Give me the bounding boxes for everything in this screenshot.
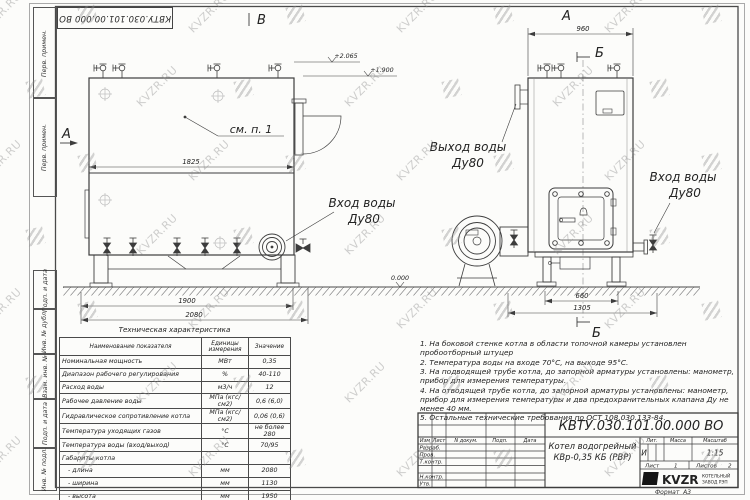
elevation-zero: 0.000 xyxy=(391,275,409,282)
note-line: 3. На подводящей трубе котла, до запорно… xyxy=(420,367,739,385)
callout-see-item: см. п. 1 xyxy=(230,123,273,136)
top-document-stamp: КВТУ.030.101.00.000 ВО xyxy=(57,7,173,29)
inlet-side-dn: Ду80 xyxy=(668,186,701,200)
boiler-side-view xyxy=(452,60,657,318)
lit-value: И xyxy=(641,449,647,458)
note-line: 1. На боковой стенке котла в области топ… xyxy=(420,339,739,357)
dim-1900: 1900 xyxy=(178,297,195,305)
dim-960: 960 xyxy=(577,25,590,33)
spec-row: Рабочее давление водыМПа (кгс/см2)0,6 (6… xyxy=(60,394,291,409)
svg-text:Подп.: Подп. xyxy=(492,438,507,444)
svg-text:Лист: Лист xyxy=(432,438,447,444)
spec-row: Габариты котла xyxy=(60,452,291,465)
svg-text:КОТЕЛЬНЫЙ: КОТЕЛЬНЫЙ xyxy=(702,473,730,480)
outlet-side-dn: Ду80 xyxy=(451,156,484,170)
svg-text:Масса: Масса xyxy=(670,438,686,444)
dim-2080: 2080 xyxy=(185,311,202,319)
spec-row: Номинальная мощностьМВт0,35 xyxy=(60,356,291,369)
dim-660: 660 xyxy=(576,292,589,300)
inlet-side-label: Вход воды xyxy=(650,170,717,184)
svg-text:Масштаб: Масштаб xyxy=(703,438,727,444)
dim-1305: 1305 xyxy=(573,304,590,312)
svg-text:Лит.: Лит. xyxy=(645,438,658,444)
svg-text:N докум.: N докум. xyxy=(454,438,477,444)
margin-box-inv-podl: Инв. № подл. xyxy=(33,447,57,491)
technical-notes: 1. На боковой стенке котла в области топ… xyxy=(420,339,739,423)
dim-1825: 1825 xyxy=(182,158,199,166)
svg-text:Разраб.: Разраб. xyxy=(420,445,441,451)
spec-row: - ширинамм1130 xyxy=(60,477,291,490)
svg-text:Лист: Лист xyxy=(644,463,660,469)
outlet-side-label: Выход воды xyxy=(430,140,506,154)
elevation-1900: +1.900 xyxy=(370,67,393,74)
margin-box-inv-dubl: Инв. № дубл. xyxy=(33,308,57,355)
spec-row: - длинамм2080 xyxy=(60,464,291,477)
spec-row: Температура воды (вход/выход)°С70/95 xyxy=(60,439,291,452)
product-name-line2: КВр-0,35 КБ (РВР) xyxy=(553,452,631,462)
svg-text:2: 2 xyxy=(728,463,732,469)
spec-header-row: Наименование показателя Единицы измерени… xyxy=(60,338,291,356)
margin-box-vzam-inv: Взам. инв. № xyxy=(33,353,57,400)
company-name: KVZR xyxy=(662,473,699,487)
svg-text:Листов: Листов xyxy=(695,463,717,469)
margin-box-podp-data-2: Подп. и дата xyxy=(33,398,57,449)
margin-box-perv-primen-1: Перв. примен. xyxy=(33,7,57,99)
product-name-line1: Котел водогрейный xyxy=(549,441,637,451)
note-line: 4. На отводящей трубе котла, до запорной… xyxy=(420,386,739,413)
spec-row: Диапазон рабочего регулирования%40-110 xyxy=(60,368,291,381)
drawing-sheet: В А А Б Б см. п. 1 1825 1900 2080 960 66… xyxy=(0,0,750,500)
ground-line xyxy=(63,287,700,296)
spec-table: Наименование показателя Единицы измерени… xyxy=(59,337,291,500)
svg-text:Утв.: Утв. xyxy=(420,482,431,488)
svg-text:Дата: Дата xyxy=(523,438,537,444)
svg-text:Изм: Изм xyxy=(420,438,430,444)
svg-text:Пров.: Пров. xyxy=(420,452,436,458)
svg-text:1: 1 xyxy=(674,463,678,469)
inlet-front-dn: Ду80 xyxy=(347,212,380,226)
spec-row: Температура уходящих газов°Сне более 280 xyxy=(60,424,291,439)
view-b-label: В xyxy=(257,13,266,28)
scale-value: 1:15 xyxy=(707,449,724,458)
view-a-side-label: А xyxy=(61,127,71,142)
spec-row: Гидравлическое сопротивление котлаМПа (к… xyxy=(60,409,291,424)
view-a-top-label: А xyxy=(561,9,571,24)
margin-box-perv-primen-2: Перв. примен. xyxy=(33,97,57,197)
side-view-dimensions xyxy=(502,28,670,327)
format-label: Формат А3 xyxy=(655,489,750,496)
title-block-texts: КВТУ.030.101.00.000 ВО Изм Лист N докум.… xyxy=(420,419,733,488)
section-label-top: Б xyxy=(595,46,604,61)
spec-table-block: Техническая характеристика Наименование … xyxy=(59,325,290,500)
svg-text:Н.контр.: Н.контр. xyxy=(420,475,444,481)
note-line: 5. Остальные технические требования по О… xyxy=(420,413,739,422)
margin-box-podp-data-1: Подп. и дата xyxy=(33,270,57,310)
boiler-front-view xyxy=(85,64,341,287)
spec-row: Расход водым3/ч12 xyxy=(60,381,291,394)
svg-text:Т.контр.: Т.контр. xyxy=(420,459,443,465)
spec-row: - высотамм1950 xyxy=(60,490,291,500)
elevation-2065: +2.065 xyxy=(334,53,357,60)
inlet-front-label: Вход воды xyxy=(329,196,396,210)
spec-table-title: Техническая характеристика xyxy=(59,325,290,334)
note-line: 2. Температура воды на входе 70°С, на вы… xyxy=(420,358,739,367)
svg-text:ЗАВОД РЭП: ЗАВОД РЭП xyxy=(702,480,728,486)
